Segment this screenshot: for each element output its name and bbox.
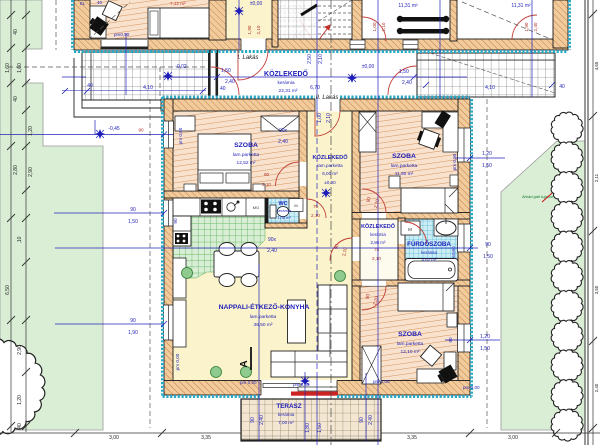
svg-text:-0,45: -0,45	[108, 126, 120, 132]
svg-text:1,80: 1,80	[305, 423, 311, 433]
svg-text:6,70: 6,70	[310, 85, 320, 91]
svg-text:2,40: 2,40	[225, 79, 235, 85]
svg-text:±0,00: ±0,00	[362, 64, 375, 70]
svg-text:1,08 m²: 1,08 m²	[277, 215, 291, 220]
svg-text:II. Lakás: II. Lakás	[316, 95, 339, 101]
svg-text:lam.parketta: lam.parketta	[397, 341, 424, 347]
svg-text:1,60: 1,60	[17, 63, 23, 73]
svg-text:3,50: 3,50	[594, 285, 599, 294]
svg-text:7,12 m²: 7,12 m²	[170, 1, 186, 6]
svg-text:2,40: 2,40	[368, 415, 374, 425]
svg-text:6,50: 6,50	[5, 285, 11, 295]
svg-text:lam.parketta: lam.parketta	[233, 152, 260, 158]
svg-text:NAPPALI-ÉTKEZŐ-KONYHA: NAPPALI-ÉTKEZŐ-KONYHA	[219, 302, 310, 311]
svg-text:kerámia: kerámia	[277, 208, 292, 213]
svg-text:3,00: 3,00	[109, 435, 119, 441]
svg-text:2,10: 2,10	[318, 54, 324, 64]
svg-text:kerámia: kerámia	[278, 412, 295, 417]
svg-text:2,10: 2,10	[326, 113, 332, 123]
svg-text:60x90: 60x90	[451, 246, 456, 258]
svg-text:1,50: 1,50	[128, 219, 138, 225]
svg-text:1,00: 1,00	[317, 113, 323, 123]
svg-text:11,31 m²: 11,31 m²	[511, 3, 531, 9]
svg-text:1,50: 1,50	[482, 163, 492, 169]
svg-text:2,40: 2,40	[402, 80, 412, 86]
svg-text:2,40: 2,40	[267, 248, 277, 254]
svg-text:EL: EL	[80, 1, 86, 6]
svg-text:1,50: 1,50	[480, 346, 490, 352]
svg-text:KÖZLEKEDŐ: KÖZLEKEDŐ	[312, 154, 348, 161]
svg-text:MG: MG	[253, 205, 259, 210]
svg-text:90: 90	[264, 172, 270, 177]
svg-text:1,90: 1,90	[128, 330, 138, 336]
svg-text:2,90: 2,90	[17, 345, 23, 355]
svg-text:1,50: 1,50	[317, 423, 323, 433]
svg-text:kerámia: kerámia	[421, 250, 437, 255]
svg-text:40: 40	[97, 0, 102, 5]
svg-text:FÜRDŐSZOBA: FÜRDŐSZOBA	[407, 241, 451, 248]
svg-text:40: 40	[13, 29, 19, 35]
svg-text:I. Lakás: I. Lakás	[237, 55, 258, 61]
svg-text:1,20: 1,20	[28, 126, 34, 136]
svg-text:3,35: 3,35	[407, 435, 417, 441]
svg-text:6,00 m²: 6,00 m²	[322, 171, 338, 176]
svg-text:90x: 90x	[279, 128, 288, 134]
svg-text:90: 90	[130, 207, 136, 213]
svg-text:90: 90	[250, 417, 256, 423]
svg-text:4,10: 4,10	[485, 85, 495, 91]
svg-text:pm 0,00: pm 0,00	[373, 379, 390, 384]
svg-text:lam.parketta: lam.parketta	[391, 163, 418, 169]
svg-text:90: 90	[359, 417, 365, 423]
svg-text:A: A	[239, 360, 250, 367]
svg-text:1,20: 1,20	[482, 151, 492, 157]
svg-text:1,50: 1,50	[399, 69, 409, 75]
svg-text:2,40: 2,40	[594, 383, 599, 392]
svg-text:WC: WC	[279, 201, 288, 207]
svg-text:pm 0,00: pm 0,00	[175, 353, 180, 370]
svg-text:M: M	[408, 227, 412, 232]
svg-text:±0,00: ±0,00	[324, 180, 336, 185]
svg-text:2,10: 2,10	[311, 213, 320, 218]
svg-text:90: 90	[138, 128, 144, 133]
svg-text:SZOBA: SZOBA	[392, 153, 416, 160]
svg-text:12,52 m²: 12,52 m²	[237, 160, 256, 166]
svg-text:90x: 90x	[268, 237, 277, 243]
svg-text:SZOBA: SZOBA	[234, 142, 258, 149]
svg-text:2,80 m²: 2,80 m²	[371, 240, 386, 245]
svg-text:1,20: 1,20	[480, 334, 490, 340]
svg-text:1,60: 1,60	[5, 63, 11, 73]
svg-text:pm 0,00: pm 0,00	[293, 382, 310, 387]
svg-text:1,90: 1,90	[247, 25, 252, 34]
svg-text:90: 90	[130, 318, 136, 324]
svg-text:1,00: 1,00	[372, 22, 377, 31]
svg-text:2,10: 2,10	[256, 25, 261, 34]
svg-text:1,20: 1,20	[17, 395, 23, 405]
svg-text:11,31 m²: 11,31 m²	[398, 3, 418, 9]
svg-text:3,00: 3,00	[508, 435, 518, 441]
svg-text:SZOBA: SZOBA	[398, 331, 422, 338]
svg-text:40: 40	[87, 83, 93, 89]
svg-text:4,62 m²: 4,62 m²	[422, 257, 437, 262]
svg-text:1,50: 1,50	[221, 68, 231, 74]
svg-text:lam.parketta: lam.parketta	[250, 314, 277, 320]
svg-text:lam.parketta: lam.parketta	[317, 163, 343, 168]
svg-text:kerámia: kerámia	[277, 80, 294, 86]
svg-text:1,90: 1,90	[524, 22, 529, 31]
svg-text:KÖZLEKEDŐ: KÖZLEKEDŐ	[264, 69, 309, 78]
svg-text:4,10: 4,10	[143, 85, 153, 91]
svg-text:pm 0,00: pm 0,00	[463, 385, 480, 390]
svg-text:7,00 m²: 7,00 m²	[278, 420, 294, 425]
svg-text:2,40: 2,40	[278, 139, 288, 145]
svg-text:KÖZLEKEDŐ: KÖZLEKEDŐ	[361, 223, 395, 230]
svg-text:2,10: 2,10	[372, 256, 381, 261]
svg-text:11,90 m²: 11,90 m²	[395, 171, 414, 177]
svg-text:±0,00: ±0,00	[250, 1, 263, 7]
svg-text:40: 40	[17, 423, 23, 429]
svg-text:-0,02: -0,02	[175, 64, 187, 70]
svg-text:2,11: 2,11	[594, 173, 599, 182]
svg-text:pm0,90: pm0,90	[114, 32, 130, 37]
svg-text:1,50: 1,50	[483, 254, 493, 260]
svg-text:12,10 m²: 12,10 m²	[401, 349, 420, 355]
svg-text:TERASZ: TERASZ	[276, 403, 301, 410]
svg-text:75: 75	[313, 204, 319, 209]
svg-text:pm 0,90: pm 0,90	[452, 153, 457, 170]
svg-text:pm 0,00: pm 0,00	[240, 380, 257, 385]
svg-text:,10: ,10	[17, 236, 23, 243]
svg-text:40: 40	[13, 96, 19, 102]
svg-text:90: 90	[173, 218, 178, 224]
svg-text:2,90: 2,90	[28, 167, 34, 177]
svg-text:2,40: 2,40	[259, 415, 265, 425]
svg-text:M: M	[294, 203, 297, 208]
svg-text:2,10: 2,10	[381, 22, 386, 31]
svg-text:36,50 m²: 36,50 m²	[254, 322, 273, 328]
svg-text:40: 40	[559, 84, 565, 90]
svg-text:90: 90	[448, 337, 453, 343]
svg-text:2,80: 2,80	[13, 165, 19, 175]
svg-text:2,40: 2,40	[533, 22, 538, 31]
svg-text:pm 0,90: pm 0,90	[178, 127, 183, 144]
svg-text:2,50: 2,50	[307, 54, 313, 64]
svg-text:3,35: 3,35	[201, 435, 211, 441]
svg-text:kerámia: kerámia	[370, 232, 386, 237]
svg-text:2,10: 2,10	[262, 182, 271, 187]
svg-text:40: 40	[220, 86, 226, 92]
svg-text:90: 90	[485, 242, 491, 248]
svg-text:22,31 m²: 22,31 m²	[279, 88, 298, 94]
svg-text:4,65: 4,65	[594, 61, 599, 70]
